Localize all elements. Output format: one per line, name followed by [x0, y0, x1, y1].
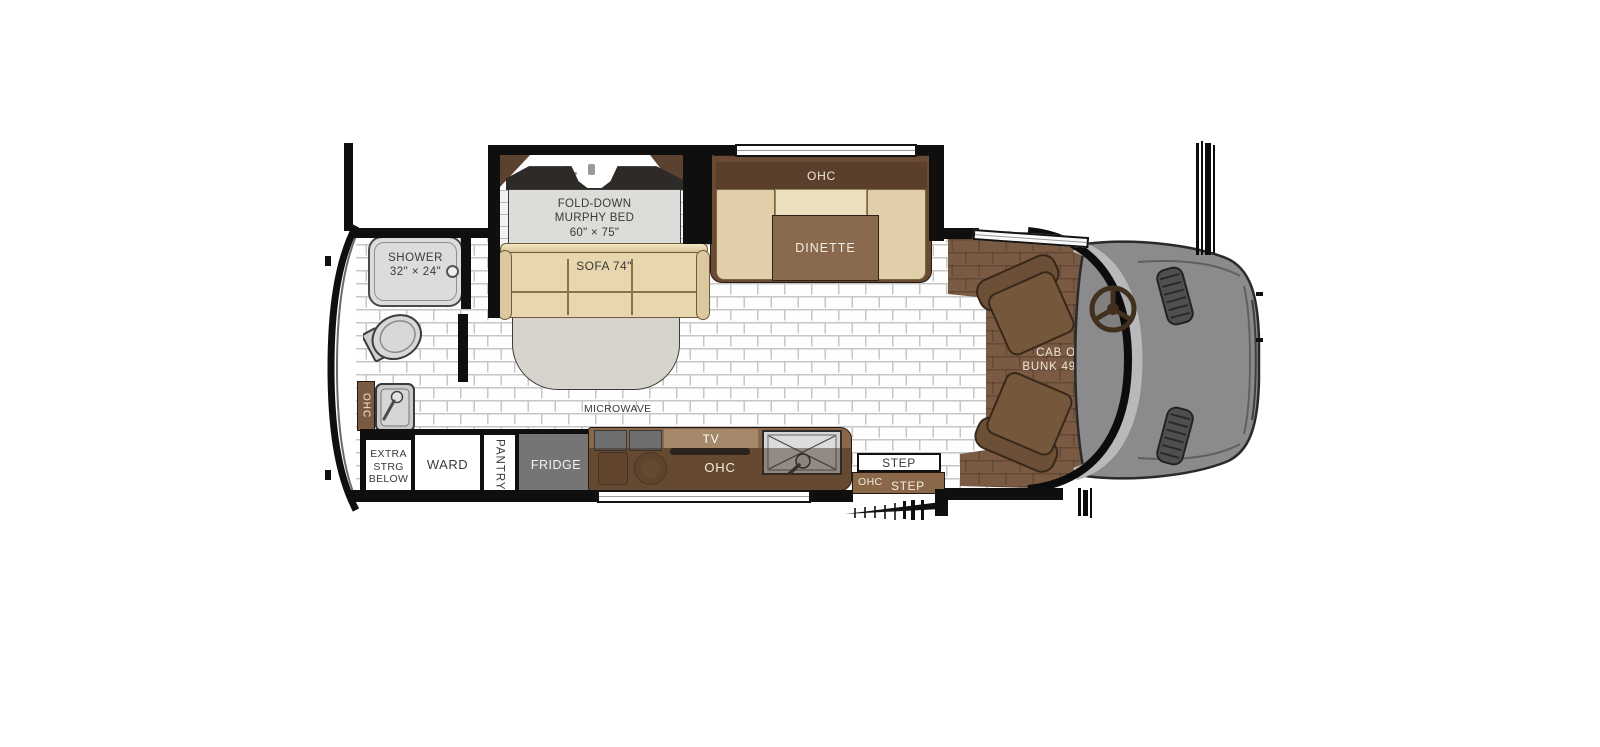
pantry-label: PANTRY — [494, 439, 506, 491]
side-mirror-top — [1196, 141, 1215, 255]
wall — [683, 145, 712, 244]
sofa: SOFA 74" — [498, 243, 710, 320]
murphy-bed: FOLD-DOWN MURPHY BED 60" × 75" — [508, 189, 681, 248]
extra-storage-label-2: STRG — [369, 461, 408, 474]
rear-ohc-cabinet: OHC — [357, 381, 375, 431]
slide-rail-dinette — [735, 144, 917, 157]
murphy-label-2: MURPHY BED — [555, 211, 634, 226]
wall — [929, 145, 944, 241]
sofa-label: SOFA 74" — [544, 259, 664, 273]
wall — [810, 490, 853, 502]
dinette-seat-center — [775, 189, 867, 216]
kitchen-ohc-label: OHC — [588, 460, 852, 475]
fridge-label: FRIDGE — [531, 458, 581, 472]
wall — [488, 145, 703, 155]
wardrobe-label: WARD — [427, 457, 468, 472]
dinette-bench-left — [716, 189, 775, 280]
murphy-label-1: FOLD-DOWN — [558, 197, 632, 212]
dinette-ohc-label: OHC — [807, 169, 836, 183]
shower-knob — [446, 265, 459, 278]
wardrobe-cabinet: WARD — [415, 435, 480, 494]
dinette-table: DINETTE — [772, 215, 879, 281]
extra-storage-label-1: EXTRA — [369, 448, 408, 461]
toilet — [363, 306, 427, 370]
wall — [488, 146, 500, 318]
murphy-label-3: 60" × 75" — [570, 226, 620, 241]
tv-cabinet: TV — [664, 429, 758, 448]
entry-ohc-label: OHC — [858, 476, 883, 488]
rv-floorplan: SHOWER 32" × 24" OHC EXTRA STRG BELOW WA… — [0, 0, 1600, 747]
wall — [945, 488, 1063, 500]
wall — [344, 143, 353, 231]
dinette-label: DINETTE — [795, 241, 855, 255]
extra-storage-cabinet: EXTRA STRG BELOW — [366, 440, 411, 494]
sofa-arm-left — [498, 250, 512, 320]
rear-cap — [324, 222, 360, 514]
dinette-ohc: OHC — [716, 162, 927, 189]
wall — [350, 490, 599, 502]
shower-size-label: 32" × 24" — [390, 265, 441, 279]
shower: SHOWER 32" × 24" — [368, 236, 463, 307]
tv-label: TV — [703, 432, 720, 446]
step-label: STEP — [882, 456, 916, 470]
side-mirror-bottom — [1078, 488, 1092, 518]
pantry-cabinet: PANTRY — [484, 435, 515, 494]
microwave-label: MICROWAVE — [584, 403, 651, 415]
slide-rail-kitchen — [597, 490, 811, 503]
bath-sink — [375, 383, 415, 433]
shower-label: SHOWER — [388, 251, 443, 265]
sofa-arm-right — [696, 250, 710, 320]
vehicle-front — [920, 128, 1280, 532]
sconce-icon — [588, 164, 595, 175]
steering-wheel — [1092, 288, 1134, 330]
rear-ohc-label: OHC — [361, 393, 372, 418]
wall — [458, 314, 468, 382]
wall — [461, 233, 471, 309]
fridge: FRIDGE — [519, 434, 593, 495]
extra-storage-label-3: BELOW — [369, 473, 408, 486]
